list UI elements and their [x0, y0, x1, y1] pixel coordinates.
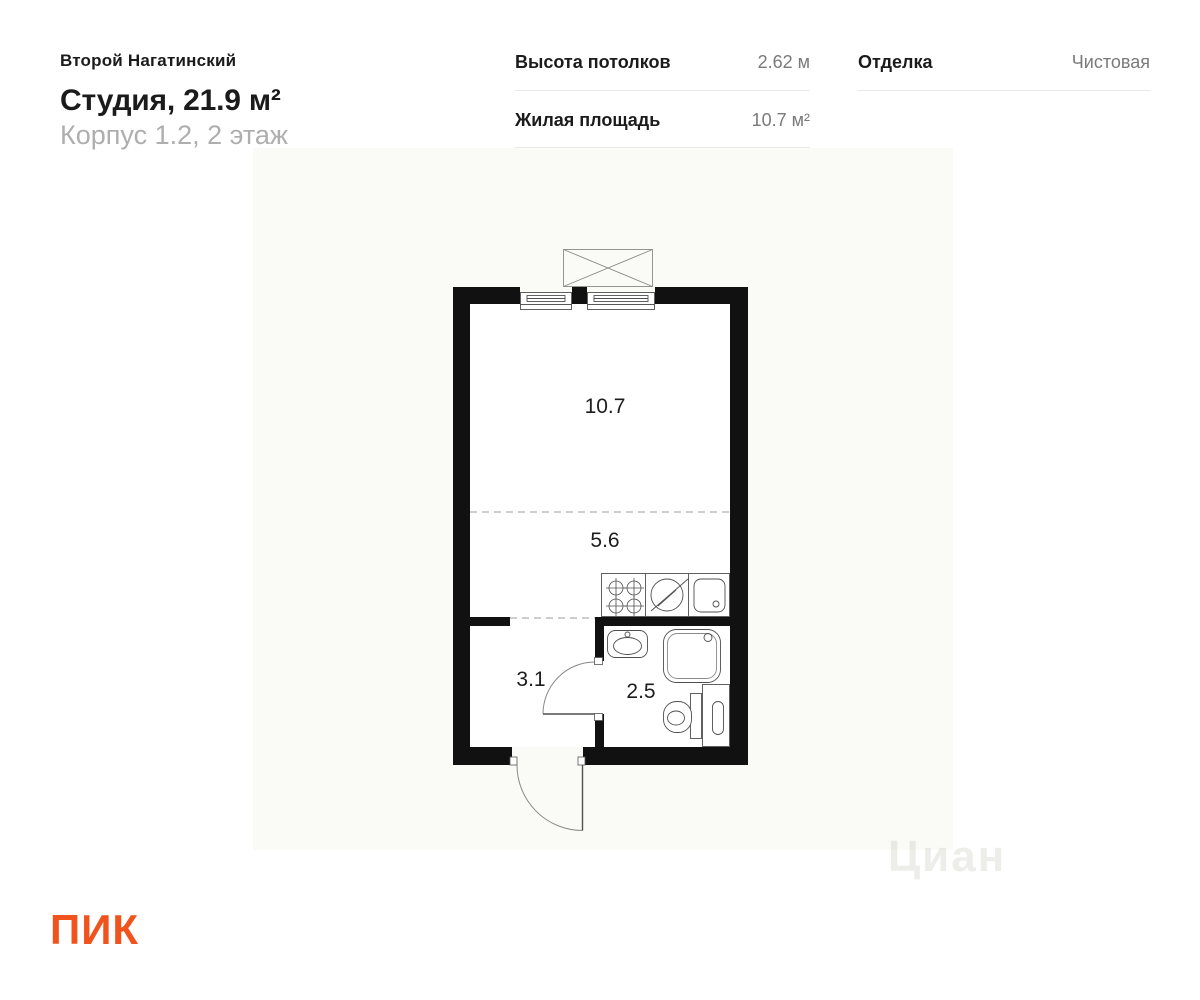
spec-living-area: Жилая площадь 10.7 м² — [515, 110, 810, 131]
divider — [858, 90, 1150, 91]
apartment-subtitle: Корпус 1.2, 2 этаж — [60, 120, 288, 151]
towel-rail-icon — [703, 685, 730, 747]
spec-value: 10.7 м² — [752, 110, 810, 131]
entrance-door-icon — [510, 757, 585, 831]
floorplan-drawing: 10.7 5.6 3.1 2.5 — [253, 148, 953, 850]
apartment-title: Студия, 21.9 м² — [60, 84, 281, 118]
watermark: Циан — [888, 832, 1006, 882]
spec-ceiling-height: Высота потолков 2.62 м — [515, 52, 810, 73]
room-label-bathroom: 2.5 — [626, 680, 655, 703]
room-label-living: 10.7 — [585, 395, 626, 418]
spec-label: Отделка — [858, 52, 932, 73]
window-icon — [588, 293, 655, 310]
spec-value: Чистовая — [1072, 52, 1150, 73]
spec-value: 2.62 м — [758, 52, 810, 73]
balcony-icon — [564, 250, 653, 287]
divider — [515, 90, 810, 91]
kitchen-block — [602, 574, 730, 617]
washbasin-icon — [608, 631, 648, 658]
floorplan-card: Второй Нагатинский Студия, 21.9 м² Корпу… — [0, 0, 1200, 1000]
shower-icon — [664, 630, 721, 683]
spec-label: Высота потолков — [515, 52, 671, 73]
room-label-kitchen: 5.6 — [590, 529, 619, 552]
spec-finishing: Отделка Чистовая — [858, 52, 1150, 73]
project-name: Второй Нагатинский — [60, 51, 236, 71]
window-icon — [521, 293, 572, 310]
room-label-hallway: 3.1 — [516, 668, 545, 691]
spec-label: Жилая площадь — [515, 110, 660, 131]
pik-logo: ПИК — [50, 906, 139, 954]
